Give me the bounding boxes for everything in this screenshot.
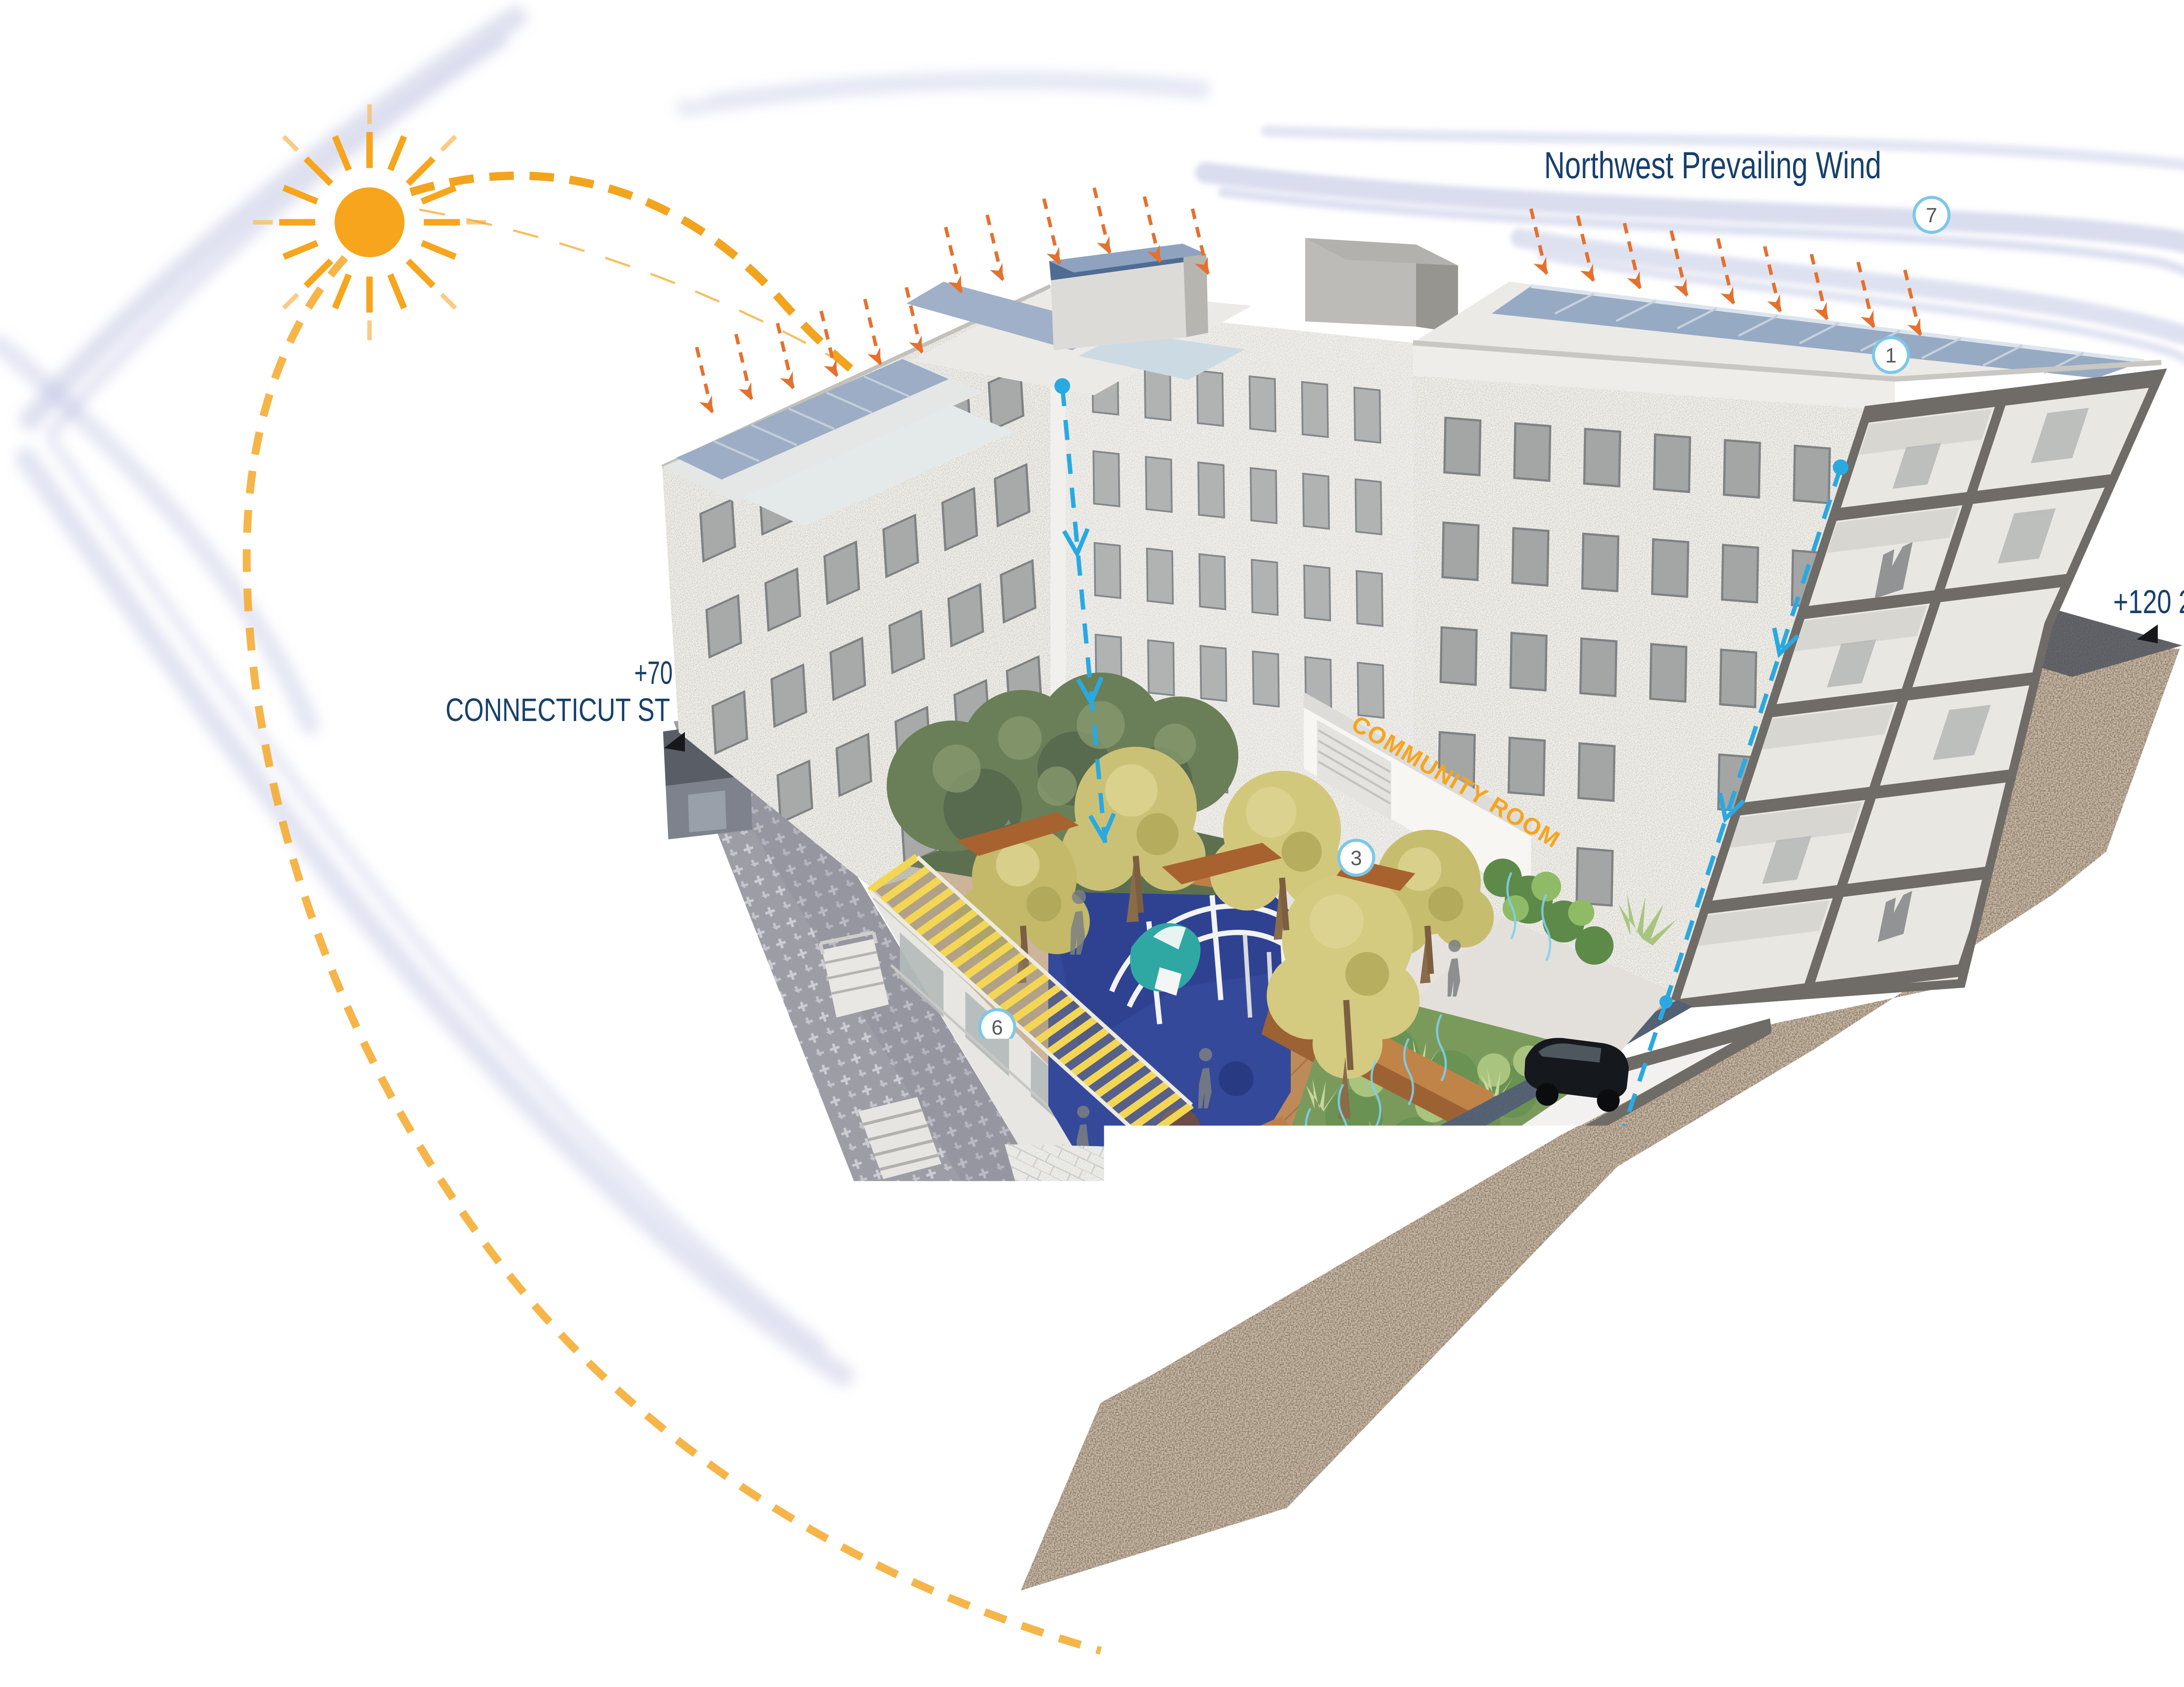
svg-text:6: 6 xyxy=(992,1016,1003,1039)
svg-text:+70: +70 xyxy=(634,655,673,691)
svg-text:9: 9 xyxy=(1185,1250,1197,1273)
svg-text:Northwest Prevailing Wind: Northwest Prevailing Wind xyxy=(1544,145,1881,186)
svg-text:4: 4 xyxy=(1619,1214,1630,1237)
svg-text:8: 8 xyxy=(1695,1001,1706,1024)
svg-text:3: 3 xyxy=(1351,846,1362,869)
svg-text:1: 1 xyxy=(1885,344,1897,367)
svg-text:5: 5 xyxy=(1275,1399,1286,1422)
svg-text:7: 7 xyxy=(1926,204,1937,227)
svg-text:2: 2 xyxy=(1548,1000,1559,1023)
svg-text:CONNECTICUT ST: CONNECTICUT ST xyxy=(446,692,670,728)
svg-text:+120 25TH ST: +120 25TH ST xyxy=(2113,583,2184,621)
